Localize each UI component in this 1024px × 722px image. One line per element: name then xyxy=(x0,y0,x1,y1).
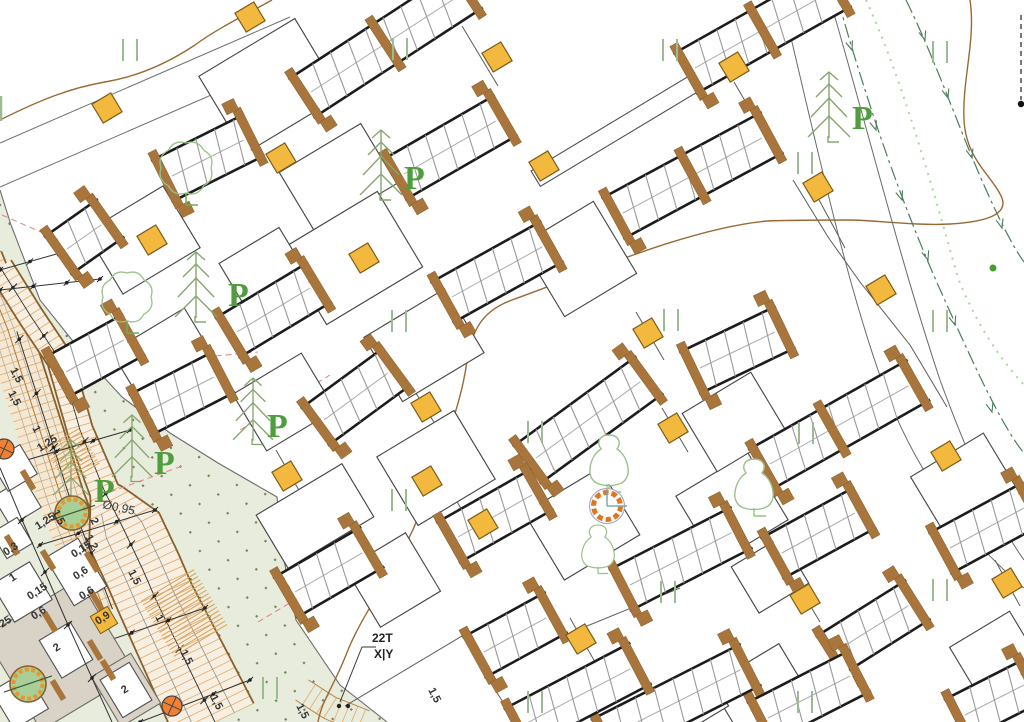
svg-text:P: P xyxy=(852,100,873,137)
svg-text:X|Y: X|Y xyxy=(374,647,393,661)
svg-text:P: P xyxy=(154,445,175,482)
svg-text:22T: 22T xyxy=(372,631,393,645)
svg-text:P: P xyxy=(228,277,249,314)
svg-text:P: P xyxy=(267,408,288,445)
svg-text:P: P xyxy=(404,160,425,197)
